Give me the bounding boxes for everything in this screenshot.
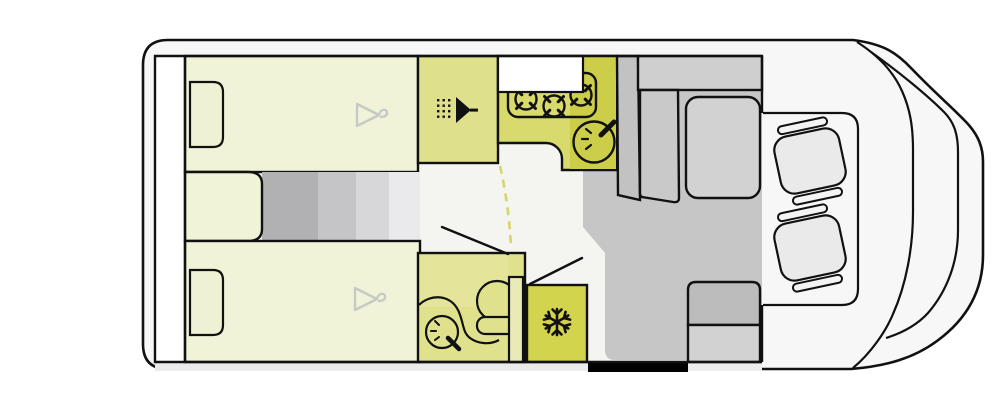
single-bed-top bbox=[185, 56, 418, 172]
tall-cabinet bbox=[617, 56, 640, 200]
washroom bbox=[418, 253, 525, 362]
lounge-dinette bbox=[617, 56, 762, 202]
dinette-table bbox=[686, 97, 760, 198]
floorplan-stage bbox=[0, 0, 1000, 418]
single-bed-bottom bbox=[185, 241, 420, 362]
entry-bench bbox=[688, 282, 760, 362]
pillow bbox=[190, 82, 223, 147]
washbasin bbox=[426, 316, 459, 349]
kitchen-window bbox=[498, 56, 583, 92]
floorplan-canvas bbox=[0, 0, 1000, 418]
bed-step-area bbox=[185, 172, 420, 241]
pillow bbox=[190, 270, 223, 335]
partition-wall bbox=[509, 277, 523, 362]
shower-cubicle bbox=[418, 56, 498, 163]
sofa-backrest bbox=[638, 56, 762, 90]
refrigerator bbox=[527, 285, 587, 362]
driver-cab bbox=[763, 113, 858, 305]
sofa-seat bbox=[640, 90, 679, 202]
rear-garage bbox=[155, 56, 185, 362]
nightstand bbox=[185, 172, 262, 241]
